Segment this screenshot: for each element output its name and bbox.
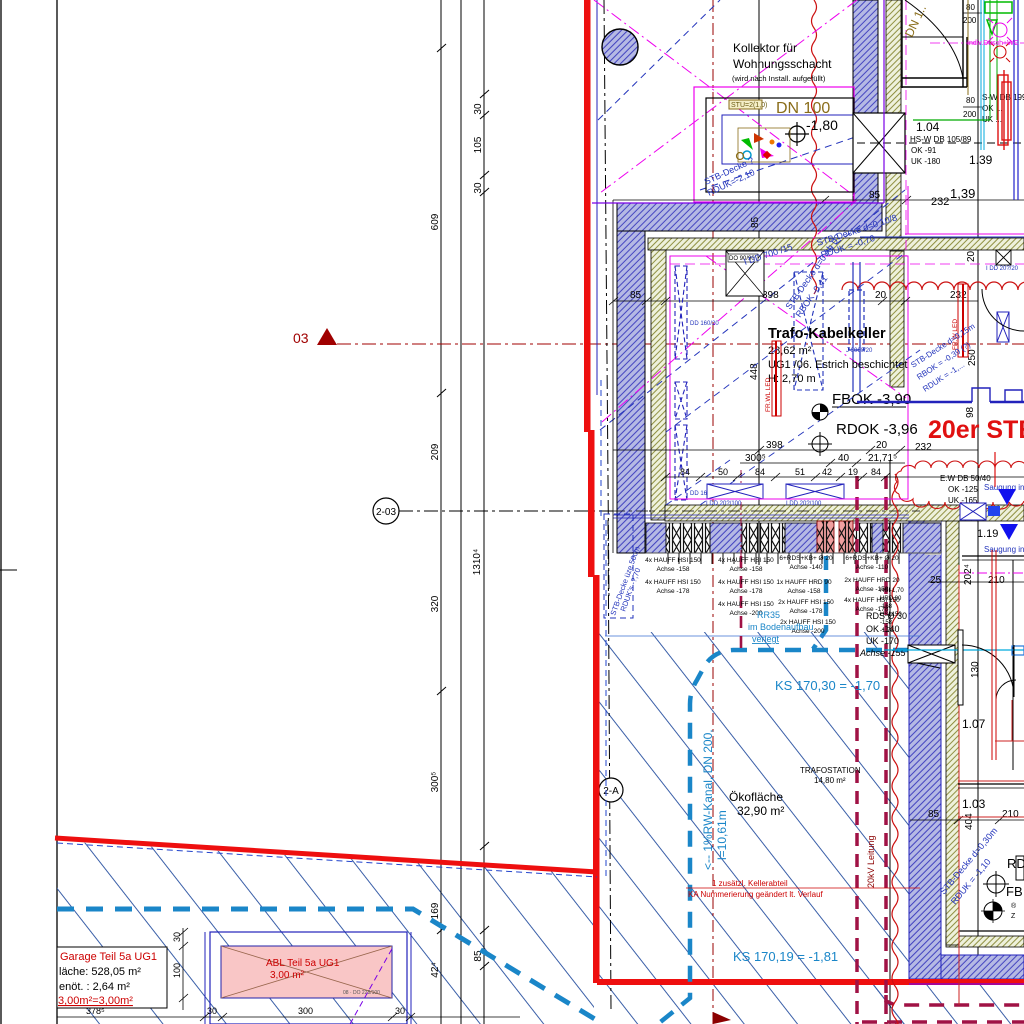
svg-text:KS 170,19 = -1,81: KS 170,19 = -1,81 [733,949,838,964]
svg-text:42⁴: 42⁴ [430,962,441,977]
svg-text:l=10,61m: l=10,61m [715,810,729,860]
svg-text:85: 85 [869,190,881,201]
svg-text:I DD 20?/100: I DD 20?/100 [706,501,742,507]
svg-text:1.39: 1.39 [969,153,993,167]
svg-text:RDOK -3,96: RDOK -3,96 [836,421,918,438]
svg-text:1,39: 1,39 [950,186,975,201]
svg-text:03: 03 [293,330,309,346]
svg-text:609: 609 [430,213,441,230]
svg-text:KS 170,30 = -1,70: KS 170,30 = -1,70 [775,678,880,693]
svg-text:20: 20 [875,290,887,301]
svg-text:TRAFOSTATION: TRAFOSTATION [800,766,861,775]
svg-text:300: 300 [298,1006,313,1016]
svg-text:30: 30 [473,103,484,115]
svg-text:1x HAUFF HRD 90: 1x HAUFF HRD 90 [776,579,832,586]
svg-text:232: 232 [915,442,932,453]
svg-text:HS-W DB 105/89: HS-W DB 105/89 [910,135,972,144]
svg-text:30: 30 [172,932,182,942]
svg-text:4x HAUFF HSI 150: 4x HAUFF HSI 150 [718,601,774,608]
svg-text:80: 80 [966,3,975,12]
svg-text:25: 25 [930,575,942,586]
svg-text:404: 404 [964,813,975,830]
svg-text:Achse -140: Achse -140 [790,564,823,571]
svg-text:-1,80: -1,80 [806,117,838,133]
svg-text:läche: 528,05 m²: läche: 528,05 m² [59,966,141,978]
svg-text:Achse -158: Achse -158 [657,566,690,573]
svg-text:51: 51 [795,467,805,477]
svg-text:14,80 m²: 14,80 m² [814,776,846,785]
svg-text:300⁵: 300⁵ [745,453,766,464]
svg-text:UG1 /06. Estrich beschichtet: UG1 /06. Estrich beschichtet [768,359,907,371]
svg-text:30: 30 [207,1006,217,1016]
svg-text:RR35: RR35 [757,610,780,620]
svg-text:FBOK -3,90: FBOK -3,90 [832,391,911,408]
svg-text:300⁵: 300⁵ [430,772,441,793]
svg-text:I DD 20?/100: I DD 20?/100 [786,501,822,507]
svg-text:85: 85 [928,809,940,820]
svg-text:-158: -158 [880,620,893,626]
svg-text:(wird nach Install. aufgefüllt: (wird nach Install. aufgefüllt) [732,74,826,83]
svg-text:98: 98 [965,406,976,418]
svg-text:DN 100: DN 100 [776,100,830,117]
svg-text:KA Nummerierung geändert lt. V: KA Nummerierung geändert lt. Verlauf [688,890,824,899]
svg-text:130: 130 [970,661,981,678]
svg-text:im Bodenaufbau: im Bodenaufbau [748,622,814,632]
svg-text:2x HAUFF HSI 150: 2x HAUFF HSI 150 [778,599,834,606]
svg-text:398: 398 [766,440,783,451]
svg-text:4x HAUFF HSI 150: 4x HAUFF HSI 150 [718,579,774,586]
svg-text:OK -125: OK -125 [948,485,978,494]
svg-text:84: 84 [871,467,881,477]
svg-text:202⁴: 202⁴ [963,564,974,585]
svg-text:3,00 m²: 3,00 m² [270,970,305,981]
svg-text:OK -91: OK -91 [911,146,937,155]
svg-text:85: 85 [630,290,642,301]
svg-text:HSI-1,70: HSI-1,70 [880,588,904,594]
svg-text:4x HAUFF HSI 150: 4x HAUFF HSI 150 [645,557,701,564]
svg-text:Wohnungsschacht: Wohnungsschacht [733,57,832,71]
svg-text:169: 169 [430,902,441,919]
svg-text:1310⁴: 1310⁴ [472,549,483,576]
svg-text:105: 105 [473,136,484,153]
svg-text:Trafo-Kabelkeller: Trafo-Kabelkeller [768,326,886,342]
svg-text:398: 398 [762,290,779,301]
svg-text:32,90 m²: 32,90 m² [737,804,784,818]
svg-text:320: 320 [430,595,441,612]
svg-text:Achse -178: Achse -178 [657,588,690,595]
svg-text:84: 84 [755,467,765,477]
svg-text:200: 200 [963,110,977,119]
svg-text:E.W DB 50/40: E.W DB 50/40 [940,474,991,483]
svg-text:84: 84 [680,467,690,477]
svg-text:DD 160/20: DD 160/20 [690,321,719,327]
svg-text:I DD 20?/20: I DD 20?/20 [986,266,1019,272]
svg-text:<-- 1%RW-Kanal, DN 200,: <-- 1%RW-Kanal, DN 200, [701,729,715,870]
svg-text:4x HAUFF HSI 150: 4x HAUFF HSI 150 [645,579,701,586]
svg-text:STU=2(1,0): STU=2(1,0) [731,102,767,109]
svg-text:Achse -158: Achse -158 [788,588,821,595]
svg-text:1 zusätzl. Kellerabteil: 1 zusätzl. Kellerabteil [712,879,788,888]
svg-text:Ökofläche: Ökofläche [729,790,783,804]
svg-text:30: 30 [395,1006,405,1016]
svg-text:UK -180: UK -180 [911,157,941,166]
svg-text:UK -170: UK -170 [866,636,899,646]
svg-text:enöt. : 2,64 m²: enöt. : 2,64 m² [59,981,130,993]
svg-text:6+RDS+KB+ Ø 20: 6+RDS+KB+ Ø 20 [779,555,833,562]
svg-text:232: 232 [931,196,949,208]
svg-text:Garage Teil 5a UG1: Garage Teil 5a UG1 [60,951,157,963]
svg-text:Saugung in RD: Saugung in RD [984,545,1024,554]
svg-text:verlegt: verlegt [752,634,780,644]
svg-text:200: 200 [963,16,977,25]
svg-text:Indiv.Dusch+WC: Indiv.Dusch+WC [967,40,1019,47]
svg-text:Z: Z [1011,913,1016,920]
svg-text:HSI 150: HSI 150 [880,612,902,618]
svg-text:232: 232 [950,290,967,301]
svg-text:20er STE: 20er STE [928,416,1024,444]
svg-text:30: 30 [473,182,484,194]
svg-text:Kollektor für: Kollektor für [733,41,797,55]
svg-text:Achse -158: Achse -158 [730,566,763,573]
svg-text:®: ® [1011,902,1017,910]
svg-text:6+RDS+KB+ Ø 20: 6+RDS+KB+ Ø 20 [845,555,899,562]
svg-text:FB: FB [1006,884,1023,899]
svg-text:4x HAUFF HSI 150: 4x HAUFF HSI 150 [718,557,774,564]
svg-text:1.19: 1.19 [977,528,998,540]
svg-text:2-03: 2-03 [376,507,396,518]
svg-text:40: 40 [838,453,850,464]
svg-text:1.04: 1.04 [916,120,940,134]
svg-text:378⁵: 378⁵ [86,1006,105,1016]
svg-text:FR.WL LED: FR.WL LED [765,377,772,412]
svg-text:J 6060/20: J 6060/20 [846,348,873,354]
svg-text:210: 210 [988,575,1005,586]
svg-text:20kV Leitung: 20kV Leitung [866,835,876,888]
svg-text:80: 80 [966,96,975,105]
svg-text:Achse -110: Achse -110 [856,564,889,571]
svg-text:85: 85 [750,216,761,228]
svg-text:20: 20 [876,440,888,451]
svg-text:08 · DO 228/100: 08 · DO 228/100 [343,990,380,996]
svg-text:1.07: 1.07 [962,717,986,731]
svg-text:OK ...: OK ... [982,104,1002,113]
svg-text:50: 50 [718,467,728,477]
svg-text:209: 209 [430,443,441,460]
svg-text:-168: -168 [880,604,893,610]
svg-text:100: 100 [172,963,182,978]
svg-text:Achse -178: Achse -178 [790,608,823,615]
svg-text:HRD 80: HRD 80 [880,596,902,602]
svg-text:250: 250 [967,349,978,366]
svg-text:42: 42 [822,467,832,477]
svg-text:Achse -178: Achse -178 [730,588,763,595]
svg-text:20: 20 [966,250,977,262]
svg-text:1.03: 1.03 [962,797,986,811]
svg-text:-1,78: -1,78 [880,628,894,634]
svg-text:ABL Teil 5a UG1: ABL Teil 5a UG1 [266,958,340,969]
svg-text:210: 210 [1002,809,1019,820]
svg-text:19: 19 [848,467,858,477]
svg-text:21,71⁵: 21,71⁵ [868,453,897,464]
svg-text:2x HAUFF HRD 20: 2x HAUFF HRD 20 [844,577,900,584]
